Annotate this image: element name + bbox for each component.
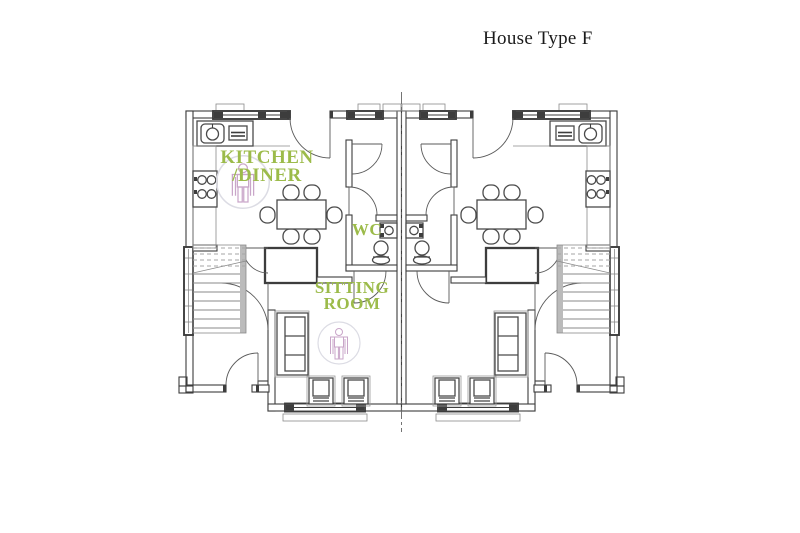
page-title: House Type F xyxy=(483,28,643,50)
floor-plan-page: House Type F KITCHEN /DINER WC SITTING R… xyxy=(0,0,800,533)
right-dwelling-plan xyxy=(402,104,625,421)
accessibility-symbol-sitting-icon xyxy=(318,322,360,364)
kitchen-label-line2: /DINER xyxy=(210,167,324,185)
wc-label: WC xyxy=(350,221,384,238)
sitting-room-label: SITTING ROOM xyxy=(299,280,405,312)
floor-plan-drawing xyxy=(0,0,800,533)
sitting-label-line2: ROOM xyxy=(299,296,405,312)
kitchen-diner-label: KITCHEN /DINER xyxy=(210,149,324,185)
